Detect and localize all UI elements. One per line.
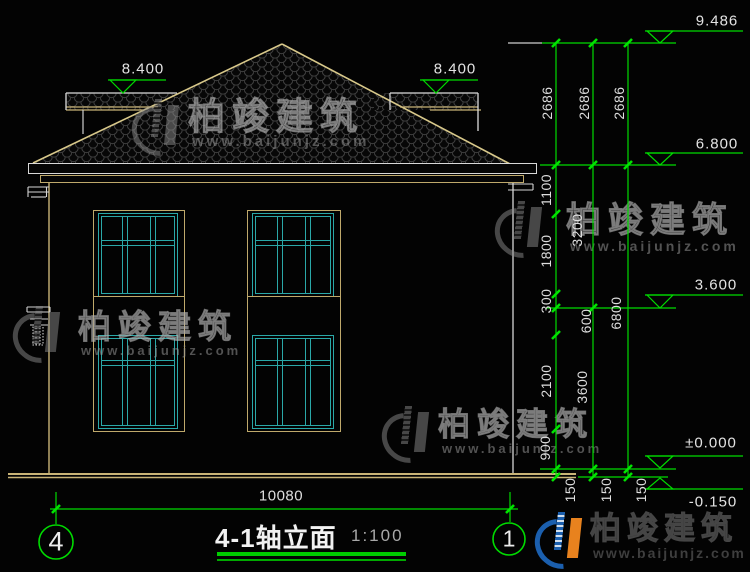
axis-number-left: 4 bbox=[48, 529, 63, 556]
drawing-title: 4-1轴立面 bbox=[215, 518, 337, 555]
dim-label: 150 bbox=[634, 478, 648, 503]
dim-label: 900 bbox=[538, 436, 552, 461]
dim-label: 2686 bbox=[612, 86, 626, 119]
footer-brand: 柏竣建筑 bbox=[590, 513, 738, 544]
dim-label: 300 bbox=[539, 289, 553, 314]
title-underline bbox=[217, 552, 406, 556]
level-label-parapet-left: 8.400 bbox=[122, 62, 165, 77]
dim-label: 6800 bbox=[609, 296, 623, 329]
footer-url: www.baijunjz.com bbox=[593, 546, 746, 560]
elevation-marker-lines bbox=[108, 31, 743, 489]
dim-label: 2686 bbox=[577, 86, 591, 119]
dim-label: 2686 bbox=[540, 86, 554, 119]
dim-label: 1100 bbox=[539, 174, 553, 206]
cad-elevation-drawing: 柏竣建筑 www.baijunjz.com 柏竣建筑 www.baijunjz.… bbox=[0, 0, 750, 572]
dim-label: 3600 bbox=[575, 370, 589, 403]
dim-label: 150 bbox=[563, 478, 577, 503]
dim-label: 600 bbox=[579, 309, 593, 334]
level-label-parapet-right: 8.400 bbox=[434, 62, 477, 77]
level-label-ridge: 9.486 bbox=[696, 14, 739, 29]
axis-number-right: 1 bbox=[503, 528, 516, 551]
dim-label: 150 bbox=[599, 478, 613, 503]
level-label-ground: -0.150 bbox=[689, 495, 738, 510]
dim-label: 1800 bbox=[539, 234, 553, 267]
level-label-eave: 6.800 bbox=[696, 137, 739, 152]
title-underline-thin bbox=[217, 559, 406, 561]
level-label-floor2: 3.600 bbox=[695, 278, 738, 293]
dim-label: 3200 bbox=[570, 213, 584, 246]
dim-label: 2100 bbox=[539, 364, 553, 397]
baijun-logo-icon-color bbox=[536, 510, 588, 568]
level-tick-lines bbox=[540, 43, 676, 477]
level-label-floor1: ±0.000 bbox=[685, 436, 737, 451]
dim-label-width: 10080 bbox=[259, 489, 303, 504]
drawing-scale: 1:100 bbox=[351, 526, 404, 546]
